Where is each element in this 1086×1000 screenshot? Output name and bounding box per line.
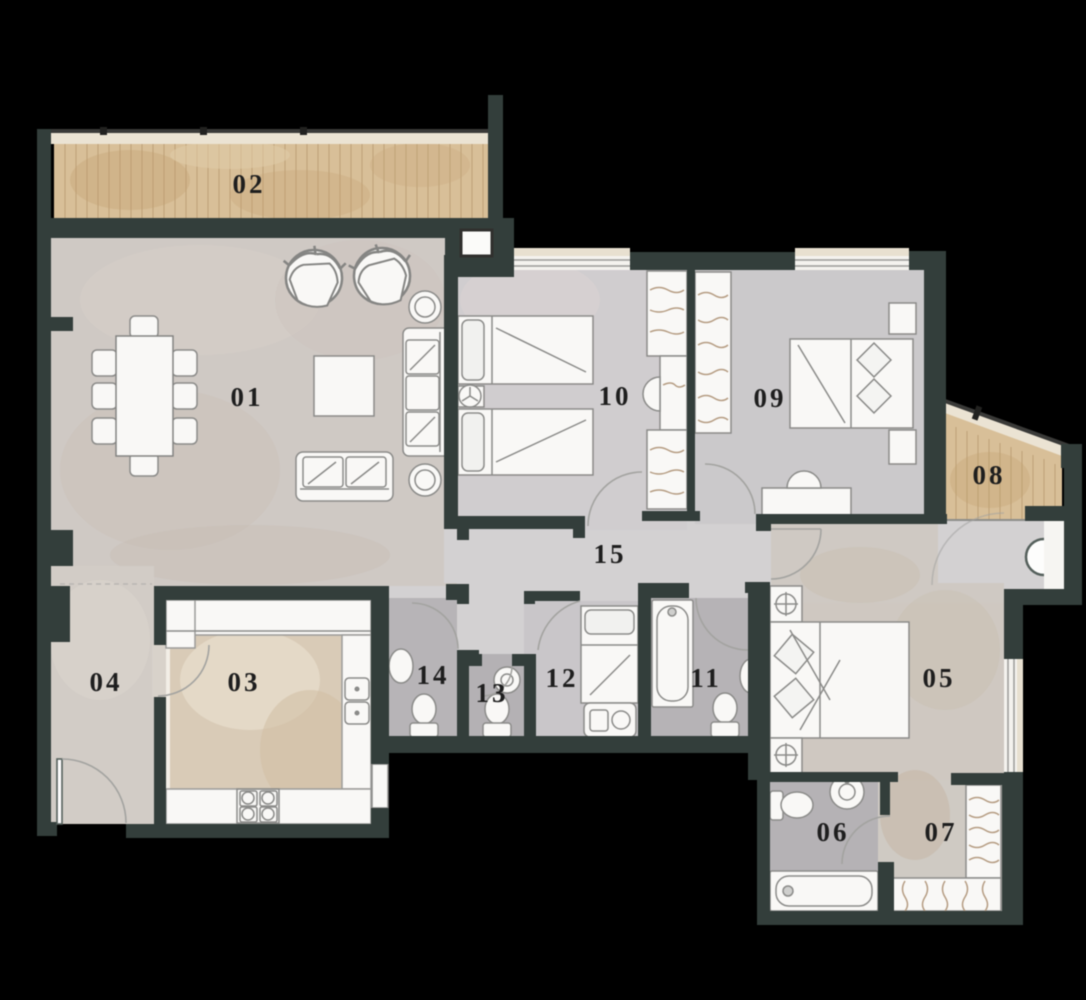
svg-text:02: 02	[233, 169, 266, 199]
svg-text:09: 09	[754, 383, 787, 413]
svg-text:15: 15	[594, 539, 627, 569]
svg-text:08: 08	[973, 460, 1006, 490]
svg-text:13: 13	[476, 678, 509, 708]
svg-text:14: 14	[417, 660, 450, 690]
svg-text:10: 10	[599, 381, 632, 411]
svg-text:04: 04	[90, 667, 123, 697]
svg-text:12: 12	[546, 663, 579, 693]
svg-text:03: 03	[228, 667, 261, 697]
svg-text:01: 01	[231, 382, 264, 412]
svg-text:07: 07	[925, 817, 958, 847]
svg-text:05: 05	[923, 663, 956, 693]
svg-text:06: 06	[817, 817, 850, 847]
svg-text:11: 11	[690, 663, 722, 693]
